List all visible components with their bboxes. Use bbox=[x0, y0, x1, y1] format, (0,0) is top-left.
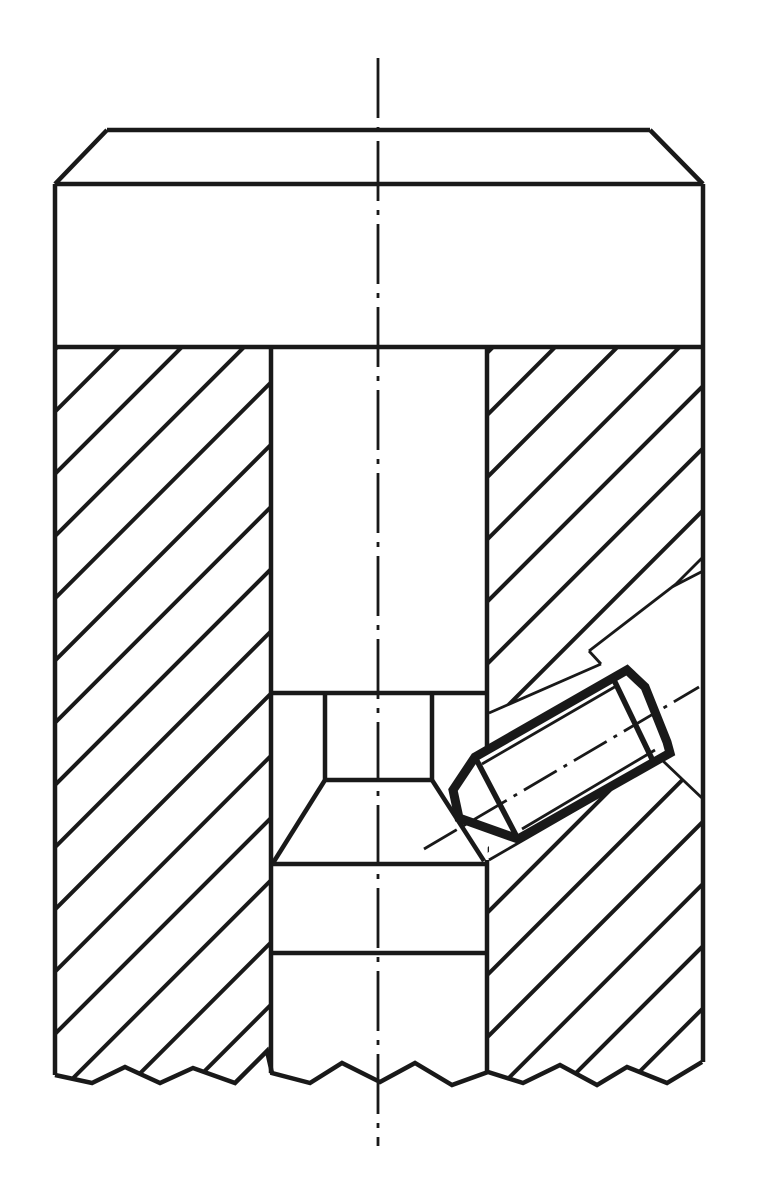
section-drawing-svg bbox=[0, 0, 762, 1200]
drawing-page bbox=[0, 0, 762, 1200]
hatch-left-wall bbox=[55, 347, 272, 1083]
technical-drawing bbox=[0, 0, 762, 1200]
